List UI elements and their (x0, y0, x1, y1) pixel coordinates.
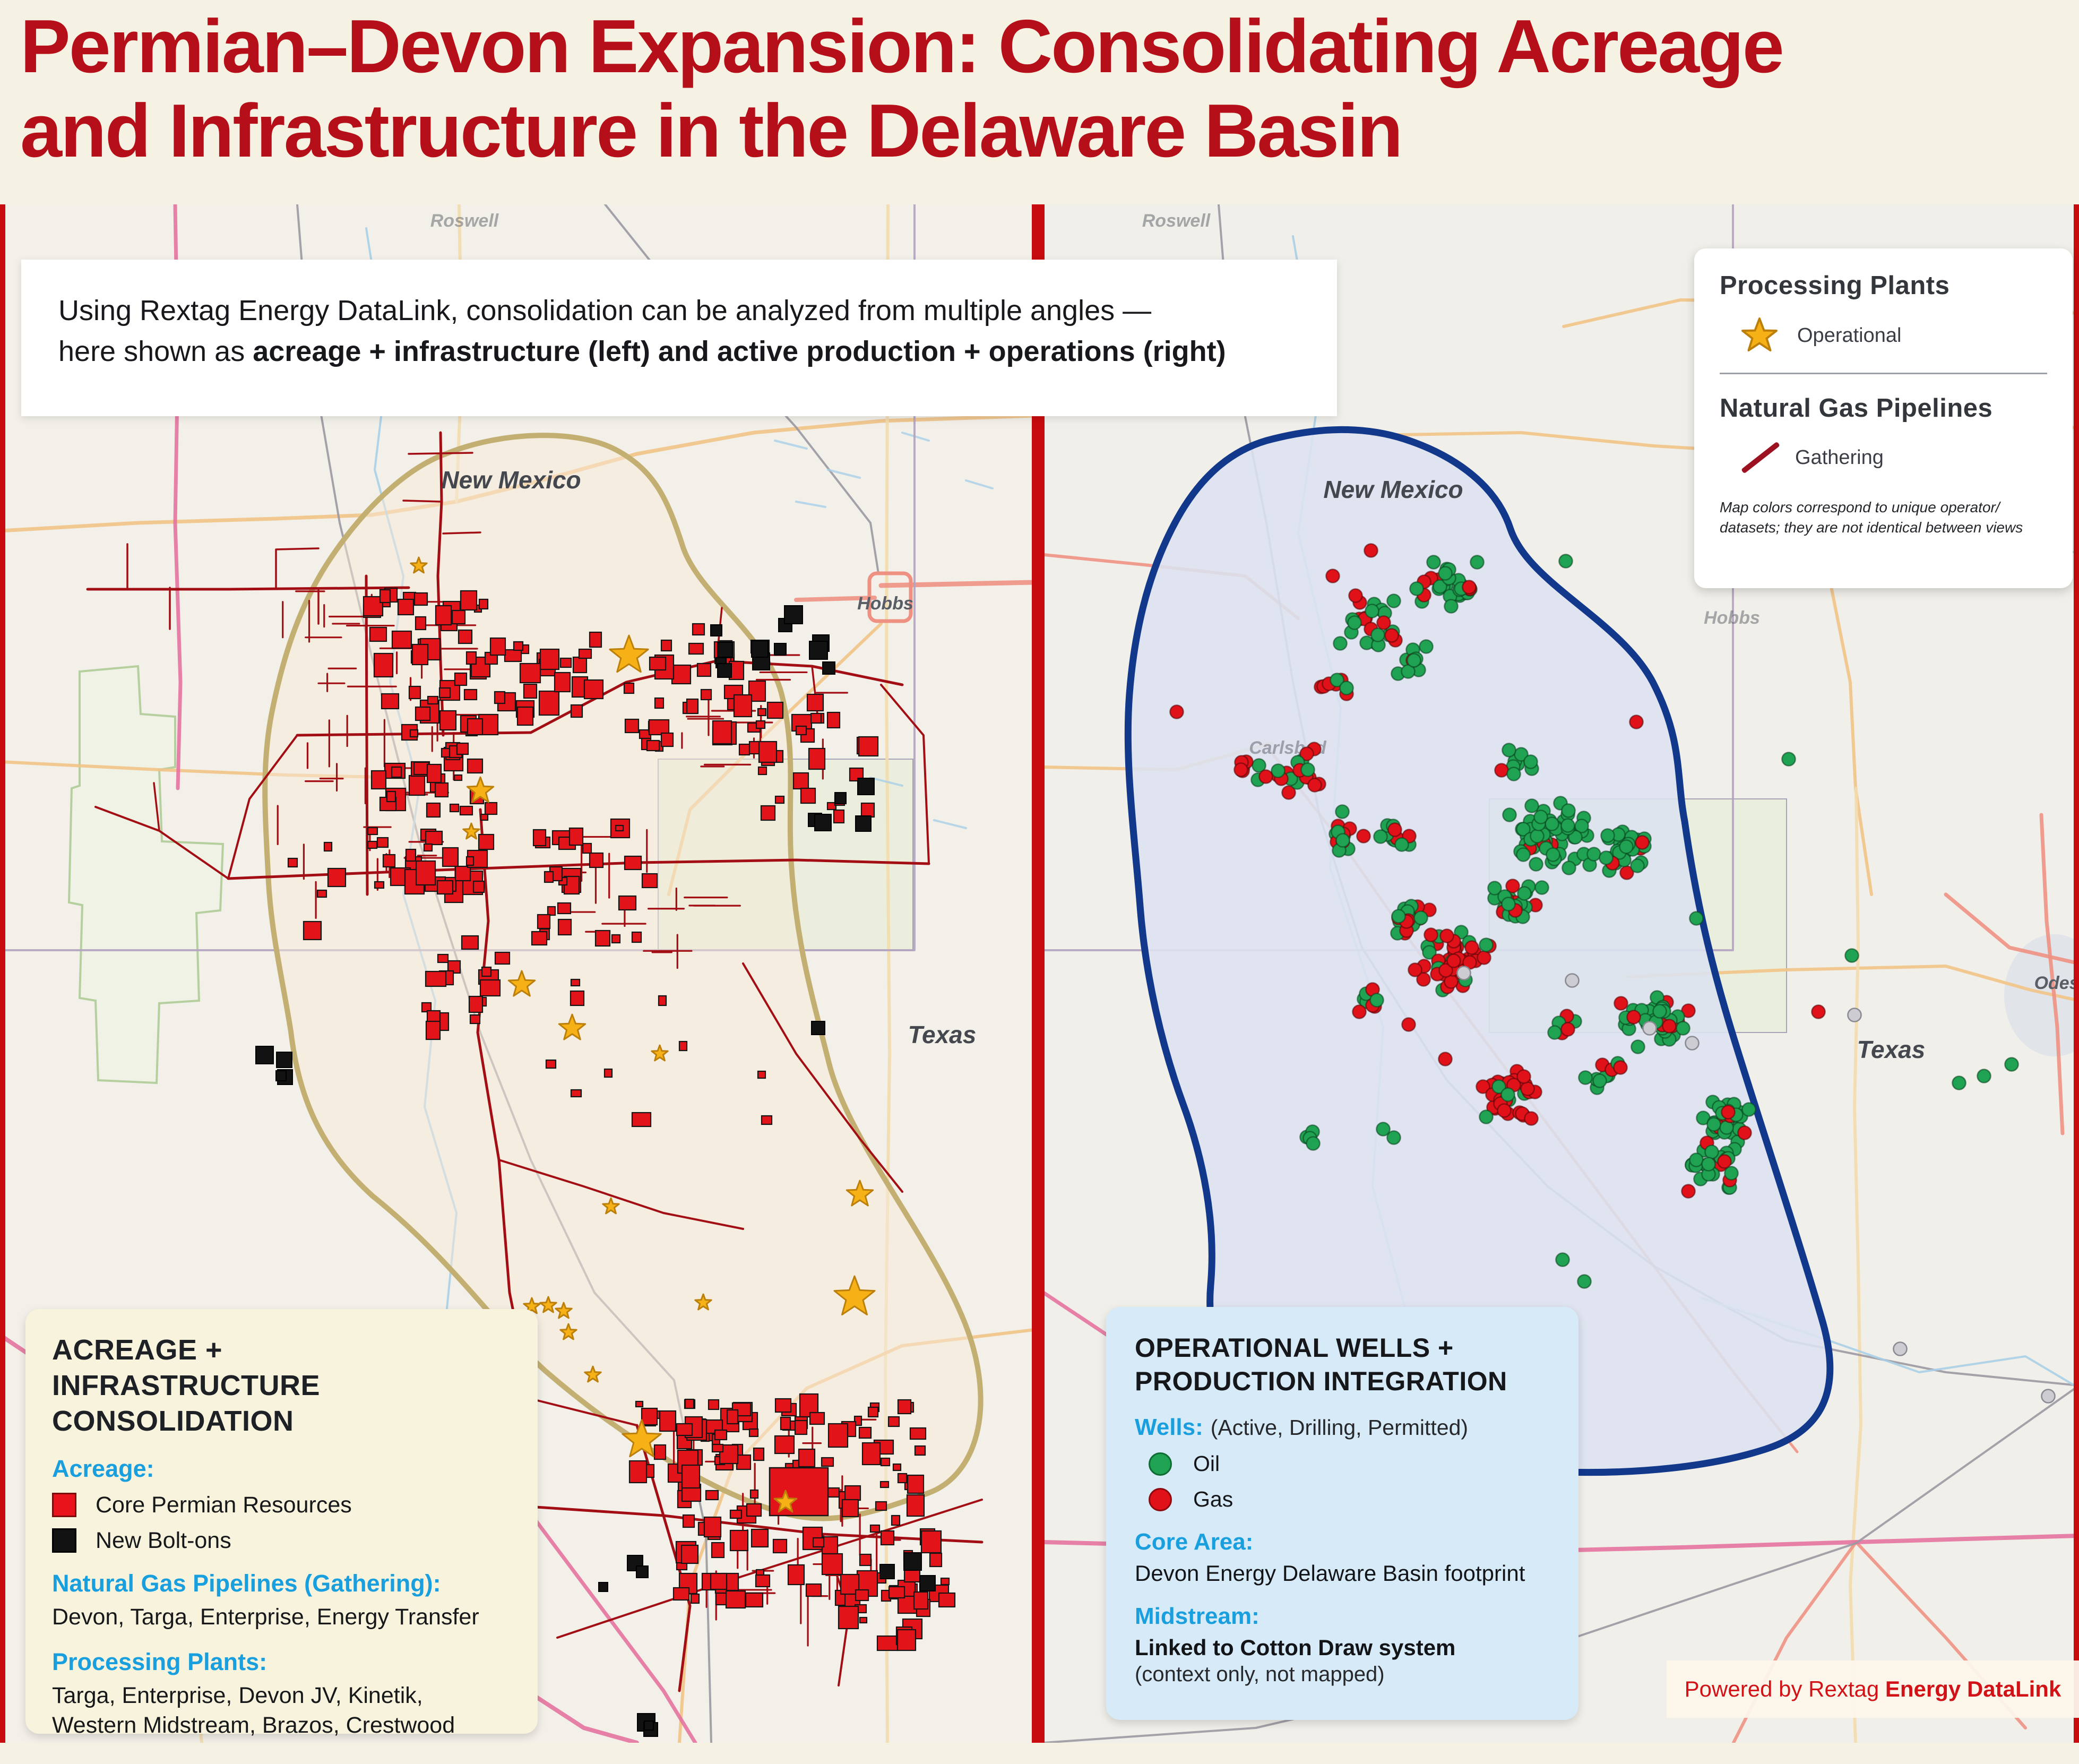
svg-text:Hobbs: Hobbs (857, 593, 913, 614)
midstream-note: (context only, not mapped) (1135, 1663, 1550, 1686)
legend-operational-wells: OPERATIONAL WELLS + PRODUCTION INTEGRATI… (1106, 1307, 1578, 1720)
legend-wells-heading: OPERATIONAL WELLS + PRODUCTION INTEGRATI… (1135, 1331, 1550, 1398)
oil-dot-icon (1149, 1452, 1172, 1476)
legend-item-core-permian: Core Permian Resources (52, 1492, 511, 1518)
plants-label: Processing Plants: (52, 1648, 511, 1676)
legend-processing-pipelines: Processing Plants Operational Natural Ga… (1694, 248, 2073, 588)
title-line-2: and Infrastructure in the Delaware Basin (20, 89, 1401, 173)
page-title: Permian–Devon Expansion: Consolidating A… (20, 4, 1783, 173)
pipelines-label: Natural Gas Pipelines (Gathering): (52, 1570, 511, 1597)
infographic-poster: Permian–Devon Expansion: Consolidating A… (0, 0, 2079, 1743)
left-frame-border (0, 204, 5, 1743)
gathering-line-icon (1740, 439, 1777, 476)
svg-text:Odessa: Odessa (2034, 973, 2079, 993)
legend-pipes-item: Gathering (1795, 446, 1884, 469)
credit-badge: Powered by Rextag Energy DataLink (1667, 1660, 2079, 1718)
star-icon (1740, 316, 1779, 355)
svg-text:New Mexico: New Mexico (441, 466, 581, 494)
legend-pipes-title: Natural Gas Pipelines (1720, 393, 2047, 423)
svg-text:Roswell: Roswell (430, 211, 499, 231)
svg-text:Roswell: Roswell (1142, 211, 1211, 231)
legend-acreage-infrastructure: ACREAGE + INFRASTRUCTURE CONSOLIDATION A… (25, 1309, 538, 1734)
acreage-label: Acreage: (52, 1455, 511, 1483)
black-swatch-icon (52, 1528, 76, 1553)
legend-acreage-heading: ACREAGE + INFRASTRUCTURE CONSOLIDATION (52, 1332, 511, 1439)
midstream-value: Linked to Cotton Draw system (1135, 1635, 1550, 1660)
map-divider (1032, 204, 1045, 1743)
legend-plants-title: Processing Plants (1720, 271, 2047, 300)
svg-text:Hobbs: Hobbs (1704, 608, 1760, 628)
legend-note: Map colors correspond to unique operator… (1720, 497, 2047, 538)
pipelines-operators: Devon, Targa, Enterprise, Energy Transfe… (52, 1603, 511, 1632)
red-swatch-icon (52, 1493, 76, 1517)
title-line-1: Permian–Devon Expansion: Consolidating A… (20, 4, 1783, 89)
legend-plants-item: Operational (1797, 324, 1901, 347)
legend-item-oil: Oil (1149, 1451, 1550, 1476)
right-frame-border (2074, 204, 2079, 1743)
core-area-value: Devon Energy Delaware Basin footprint (1135, 1561, 1550, 1586)
subtitle-box: Using Rextag Energy DataLink, consolidat… (21, 260, 1337, 416)
midstream-label: Midstream: (1135, 1603, 1550, 1630)
svg-text:Texas: Texas (1857, 1036, 1926, 1063)
svg-text:Texas: Texas (908, 1021, 977, 1048)
legend-item-gas: Gas (1149, 1487, 1550, 1512)
subtitle-line-2-bold: acreage + infrastructure (left) and acti… (253, 335, 1226, 367)
subtitle-line-2-prefix: here shown as (58, 335, 253, 367)
credit-brand: Energy DataLink (1885, 1676, 2061, 1701)
svg-text:New Mexico: New Mexico (1323, 476, 1463, 503)
subtitle-line-1: Using Rextag Energy DataLink, consolidat… (58, 295, 1151, 326)
header: Permian–Devon Expansion: Consolidating A… (0, 0, 2079, 204)
plants-operators: Targa, Enterprise, Devon JV, Kinetik, We… (52, 1681, 511, 1741)
core-area-label: Core Area: (1135, 1529, 1550, 1555)
credit-prefix: Powered by Rextag (1685, 1676, 1885, 1701)
legend-item-bolt-ons: New Bolt-ons (52, 1528, 511, 1554)
wells-label-line: Wells:(Active, Drilling, Permitted) (1135, 1414, 1550, 1441)
gas-dot-icon (1149, 1488, 1172, 1511)
legend-divider (1720, 373, 2047, 374)
